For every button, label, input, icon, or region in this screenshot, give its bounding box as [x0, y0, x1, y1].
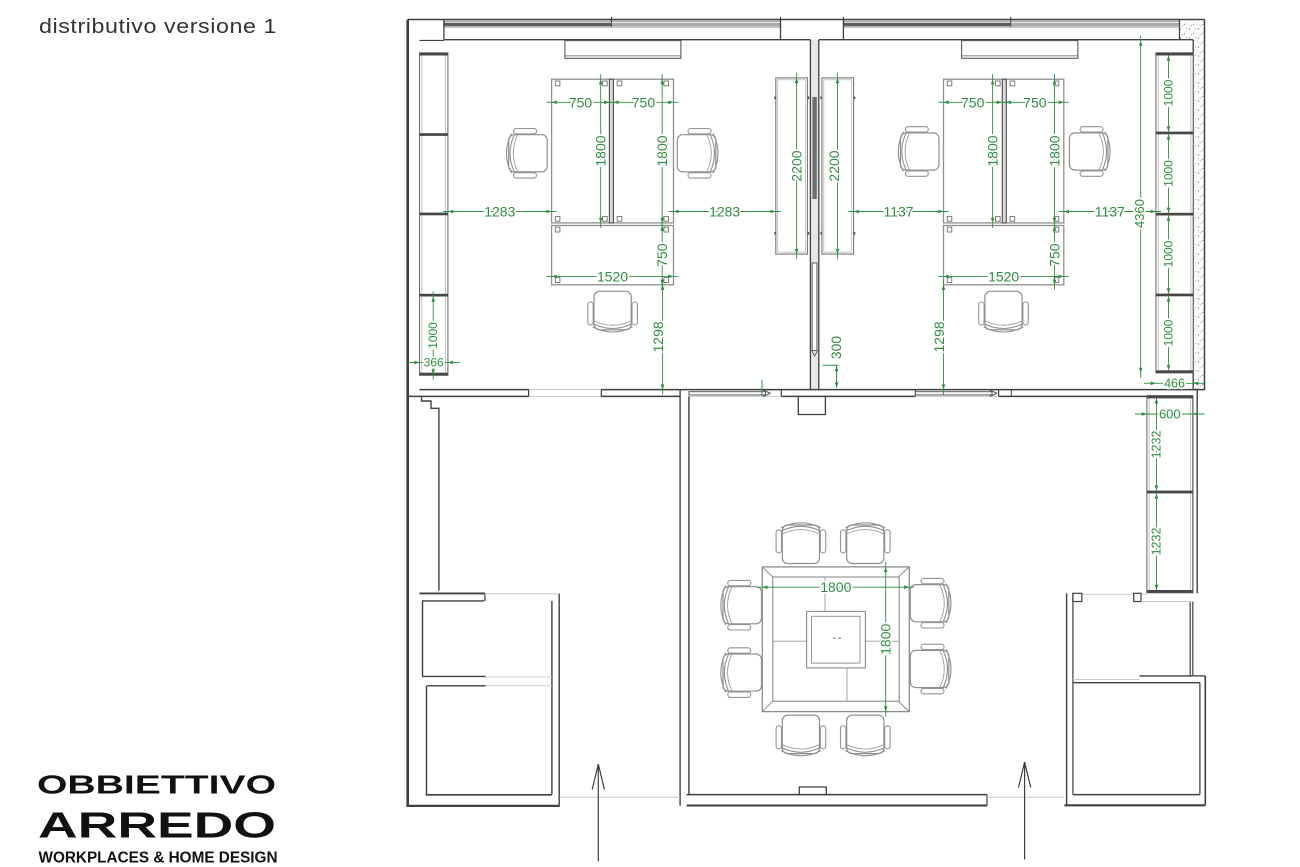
svg-text:1000: 1000	[1162, 319, 1176, 346]
svg-text:750: 750	[961, 94, 985, 110]
svg-text:1800: 1800	[654, 135, 670, 166]
svg-text:1800: 1800	[820, 579, 851, 595]
svg-text:1298: 1298	[931, 321, 947, 352]
svg-text:1283: 1283	[709, 204, 740, 220]
svg-text:distributivo versione 1: distributivo versione 1	[39, 15, 277, 38]
svg-text:1520: 1520	[597, 268, 628, 284]
svg-text:750: 750	[569, 94, 593, 110]
svg-text:OBBIETTIVO: OBBIETTIVO	[37, 770, 276, 800]
svg-text:750: 750	[654, 243, 670, 267]
svg-text:4360: 4360	[1132, 199, 1147, 228]
svg-text:300: 300	[828, 336, 844, 360]
svg-text:1800: 1800	[1047, 135, 1063, 166]
svg-text:1298: 1298	[650, 321, 666, 352]
svg-text:1800: 1800	[878, 624, 894, 655]
svg-text:1800: 1800	[593, 135, 609, 166]
svg-text:ARREDO: ARREDO	[38, 805, 276, 846]
svg-text:2200: 2200	[789, 150, 805, 181]
svg-text:1000: 1000	[426, 322, 440, 349]
svg-text:750: 750	[1023, 94, 1047, 110]
svg-text:1000: 1000	[1162, 240, 1176, 267]
svg-text:1232: 1232	[1150, 528, 1164, 556]
svg-text:466: 466	[1164, 376, 1185, 390]
svg-text:750: 750	[632, 94, 656, 110]
svg-text:2200: 2200	[826, 150, 842, 181]
svg-text:600: 600	[1159, 407, 1181, 422]
svg-text:1137: 1137	[883, 204, 913, 220]
svg-text:1000: 1000	[1162, 160, 1176, 187]
svg-text:750: 750	[1047, 243, 1063, 267]
svg-text:1000: 1000	[1162, 79, 1176, 106]
svg-text:366: 366	[424, 355, 444, 369]
svg-text:1283: 1283	[484, 204, 515, 220]
svg-text:1800: 1800	[985, 135, 1001, 166]
svg-text:WORKPLACES & HOME DESIGN: WORKPLACES & HOME DESIGN	[39, 850, 278, 867]
svg-text:1232: 1232	[1150, 431, 1164, 459]
svg-text:1520: 1520	[988, 268, 1019, 284]
svg-text:1137: 1137	[1095, 204, 1125, 220]
